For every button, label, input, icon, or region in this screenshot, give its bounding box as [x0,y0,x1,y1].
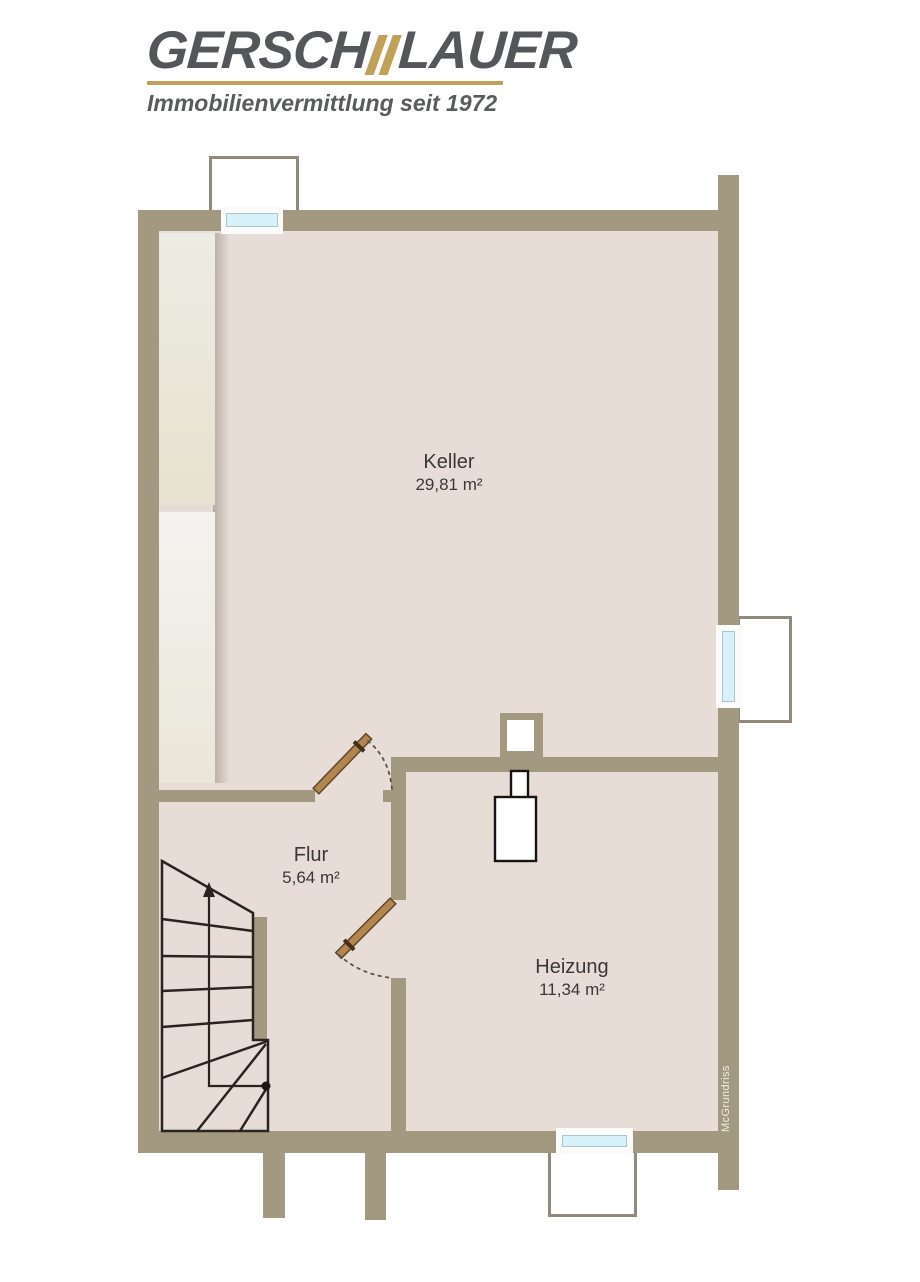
boiler [495,771,536,861]
boiler-body [495,797,536,861]
room-area: 5,64 m² [241,867,381,888]
room-label-keller: Keller 29,81 m² [349,451,549,495]
room-name: Keller [349,451,549,474]
room-name: Flur [241,844,381,867]
door-keller-swing-arc [368,741,392,789]
boiler-flue-pipe [511,771,528,799]
room-area: 29,81 m² [349,474,549,495]
door-keller [311,731,374,795]
room-label-flur: Flur 5,64 m² [241,844,381,888]
staircase [162,861,271,1131]
floorplan-page: GERSCH LAUER Immobilienvermittlung seit … [0,0,920,1282]
stair-outline [162,861,268,1131]
room-area: 11,34 m² [492,979,652,1000]
door-heizung-swing-arc [339,955,393,978]
stair-pivot-dot [262,1082,271,1091]
door-heizung [334,896,398,960]
plan-symbols [0,0,920,1282]
watermark: McGrundriss [720,1036,735,1132]
room-name: Heizung [492,956,652,979]
room-label-heizung: Heizung 11,34 m² [492,956,652,1000]
stair-treads [162,919,253,1027]
